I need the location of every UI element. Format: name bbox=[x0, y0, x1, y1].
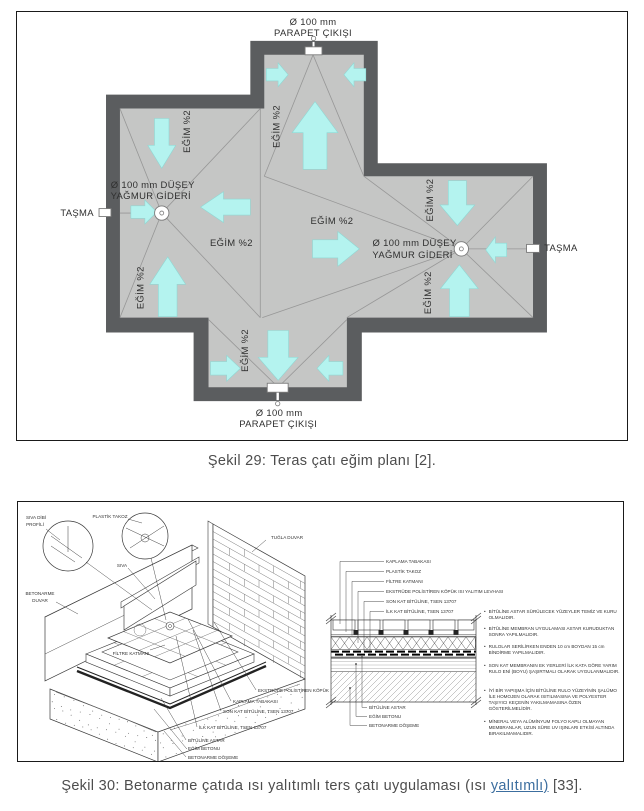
concrete-dot bbox=[70, 709, 71, 710]
section-paver bbox=[433, 620, 455, 630]
label-son-kat: SON KAT BİTÜLİNE, TSEN 13707 bbox=[223, 708, 294, 714]
roof-slope-plan-drawing: Ø 100 mmPARAPET ÇIKIŞIØ 100 mmPARAPET ÇI… bbox=[17, 12, 627, 440]
concrete-dot bbox=[260, 706, 261, 707]
concrete-dot bbox=[255, 722, 256, 723]
concrete-dot bbox=[142, 750, 143, 751]
concrete-dot bbox=[99, 718, 100, 719]
parapet-outlet-label: Ø 100 mm bbox=[290, 17, 337, 28]
label-siva: SIVA bbox=[117, 563, 128, 568]
concrete-dot bbox=[225, 735, 226, 736]
concrete-dot bbox=[277, 694, 278, 695]
concrete-dot bbox=[152, 735, 153, 736]
section-takoz bbox=[354, 630, 359, 635]
concrete-dot bbox=[127, 721, 128, 722]
concrete-dot bbox=[207, 719, 208, 720]
note-item: •SON KAT MEMBRANIN EK YERLERİ İLK KATA G… bbox=[484, 663, 622, 675]
concrete-dot bbox=[163, 747, 164, 748]
concrete-dot bbox=[238, 715, 239, 716]
concrete-dot bbox=[119, 729, 120, 730]
label-siva-dibi: SIVA DİBİ bbox=[26, 514, 46, 520]
figure1-caption-text: Şekil 29: Teras çatı eğim planı [2]. bbox=[208, 453, 436, 469]
concrete-dot bbox=[154, 751, 155, 752]
concrete-dot bbox=[235, 732, 236, 733]
section-label-top: PLASTİK TAKOZ bbox=[386, 568, 421, 574]
concrete-dot bbox=[65, 723, 66, 724]
concrete-dot bbox=[83, 705, 84, 706]
note-item: •RULOLAR SERİLİRKEN ENDEN 10 cm BOYDAN 1… bbox=[484, 644, 622, 656]
concrete-dot bbox=[137, 735, 138, 736]
concrete-dot bbox=[267, 696, 268, 697]
concrete-dot bbox=[291, 702, 292, 703]
concrete-dot bbox=[135, 725, 136, 726]
label-betonarme-duvar: DUVAR bbox=[32, 598, 48, 603]
concrete-dot bbox=[52, 701, 53, 702]
rain-drain bbox=[155, 206, 169, 220]
overflow-label: TAŞMA bbox=[544, 243, 578, 254]
concrete-dot bbox=[124, 746, 125, 747]
concrete-dot bbox=[82, 727, 83, 728]
concrete-dot bbox=[54, 694, 55, 695]
slope-label: EĞİM %2 bbox=[425, 179, 436, 222]
rain-drain-label: YAĞMUR GİDERİ bbox=[372, 250, 452, 261]
bullet-icon: • bbox=[484, 644, 486, 656]
section-paver bbox=[408, 620, 430, 630]
label-egim-betonu: EĞİM BETONU bbox=[188, 745, 220, 751]
takoz-marker bbox=[166, 622, 174, 630]
figure2-caption-prefix: Şekil 30: Betonarme çatıda ısı yalıtımlı… bbox=[61, 778, 490, 794]
concrete-dot bbox=[79, 720, 80, 721]
concrete-dot bbox=[265, 717, 266, 718]
concrete-dot bbox=[71, 715, 72, 716]
concrete-dot bbox=[110, 717, 111, 718]
concrete-dot bbox=[165, 757, 166, 758]
concrete-dot bbox=[193, 730, 194, 731]
concrete-dot bbox=[257, 715, 258, 716]
concrete-dot bbox=[56, 719, 57, 720]
concrete-dot bbox=[302, 697, 303, 698]
parapet-outlet bbox=[305, 47, 322, 55]
figure-29-roof-slope-plan: Ø 100 mmPARAPET ÇIKIŞIØ 100 mmPARAPET ÇI… bbox=[16, 11, 628, 441]
figure2-caption: Şekil 30: Betonarme çatıda ısı yalıtımlı… bbox=[0, 778, 644, 794]
section-label-top: FİLTRE KATMANI bbox=[386, 578, 423, 584]
concrete-dot bbox=[74, 725, 75, 726]
label-plastik-takoz: PLASTİK TAKOZ bbox=[92, 513, 127, 519]
concrete-dot bbox=[62, 711, 63, 712]
brick-wall-edge bbox=[208, 521, 213, 627]
detail-circle-plastik-takoz bbox=[122, 513, 168, 559]
concrete-dot bbox=[91, 729, 92, 730]
note-item: •BİTÜLİNE ASTAR SÜRÜLECEK YÜZEYLER TEMİZ… bbox=[484, 609, 622, 621]
section-takoz bbox=[379, 630, 384, 635]
concrete-dot bbox=[73, 700, 74, 701]
slope-label: EĞİM %2 bbox=[240, 329, 251, 372]
concrete-dot bbox=[182, 740, 183, 741]
concrete-dot bbox=[238, 705, 239, 706]
concrete-dot bbox=[107, 739, 108, 740]
label-betonarme-duvar: BETONARME bbox=[25, 591, 54, 596]
concrete-dot bbox=[176, 753, 177, 754]
concrete-dot bbox=[89, 714, 90, 715]
note-text: MİNERAL VEYA ALÜMİNYUM FOLYO KAPLI OLMAY… bbox=[489, 719, 622, 737]
section-label-bottom: BİTÜLİNE ASTAR bbox=[369, 704, 406, 710]
concrete-dot bbox=[97, 727, 98, 728]
concrete-dot bbox=[144, 730, 145, 731]
note-item: •İYİ BİR YAPIŞMA İÇİN BİTÜLİNE RULO YÜZE… bbox=[484, 688, 622, 712]
rain-drain-label: YAĞMUR GİDERİ bbox=[111, 191, 191, 202]
concrete-dot bbox=[146, 737, 147, 738]
slope-label: EĞİM %2 bbox=[272, 105, 283, 148]
concrete-dot bbox=[163, 733, 164, 734]
bullet-icon: • bbox=[484, 609, 486, 621]
figure1-caption: Şekil 29: Teras çatı eğim planı [2]. bbox=[0, 453, 644, 469]
section-paver bbox=[458, 620, 474, 630]
section-label-bottom: BETONARME DÖŞEME bbox=[369, 722, 419, 728]
section-paver bbox=[358, 620, 380, 630]
concrete-dot bbox=[99, 734, 100, 735]
section-label-top: İLK KAT BİTÜLİNE, TSEN 13707 bbox=[386, 608, 454, 614]
concrete-dot bbox=[133, 747, 134, 748]
concrete-dot bbox=[216, 720, 217, 721]
section-label-top: EKSTRÜDE POLİSTİREN KÖPÜK ISI YALITIM LE… bbox=[386, 588, 503, 594]
concrete-dot bbox=[125, 736, 126, 737]
section-paver bbox=[333, 620, 355, 630]
concrete-dot bbox=[185, 724, 186, 725]
concrete-dot bbox=[88, 724, 89, 725]
concrete-dot bbox=[155, 740, 156, 741]
bullet-icon: • bbox=[484, 626, 486, 638]
label-doseme: BETONARME DÖŞEME bbox=[188, 754, 238, 760]
section-paver bbox=[383, 620, 405, 630]
overflow-label: TAŞMA bbox=[60, 208, 94, 219]
slope-label: EĞİM %2 bbox=[182, 110, 193, 153]
bullet-icon: • bbox=[484, 688, 486, 712]
concrete-dot bbox=[246, 717, 247, 718]
concrete-dot bbox=[160, 742, 161, 743]
concrete-dot bbox=[218, 715, 219, 716]
note-item: •BİTÜLİNE MEMBRAN UYGULAMASI ASTAR KURUD… bbox=[484, 626, 622, 638]
rain-drain-label: Ø 100 mm DÜŞEY bbox=[111, 180, 195, 191]
section-label-top: KAPLAMA TABAKASI bbox=[386, 559, 431, 564]
leader-dot bbox=[355, 663, 357, 665]
note-text: İYİ BİR YAPIŞMA İÇİN BİTÜLİNE RULO YÜZEY… bbox=[489, 688, 622, 712]
note-item: •MİNERAL VEYA ALÜMİNYUM FOLYO KAPLI OLMA… bbox=[484, 719, 622, 737]
concrete-dot bbox=[298, 709, 299, 710]
section-label-top: SON KAT BİTÜLİNE, TSEN 13707 bbox=[386, 598, 457, 604]
label-astar: BİTÜLİNE ASTAR bbox=[188, 737, 225, 743]
parapet-outlet bbox=[267, 383, 288, 392]
concrete-dot bbox=[80, 712, 81, 713]
concrete-dot bbox=[61, 706, 62, 707]
section-takoz bbox=[404, 630, 409, 635]
label-siva-dibi: PROFİLİ bbox=[26, 521, 44, 527]
concrete-dot bbox=[106, 729, 107, 730]
concrete-dot bbox=[202, 736, 203, 737]
label-ilk-kat: İLK KAT BİTÜLİNE, TSEN 13707 bbox=[199, 724, 267, 730]
concrete-dot bbox=[128, 733, 129, 734]
parapet-outlet-label: PARAPET ÇIKIŞI bbox=[274, 28, 352, 39]
leader-dot bbox=[361, 656, 363, 658]
concrete-dot bbox=[186, 748, 187, 749]
note-text: BİTÜLİNE MEMBRAN UYGULAMASI ASTAR KURUDU… bbox=[489, 626, 622, 638]
section-takoz bbox=[429, 630, 434, 635]
label-filtre-katmani: FİLTRE KATMANI bbox=[113, 650, 150, 656]
bullet-icon: • bbox=[484, 663, 486, 675]
concrete-dot bbox=[101, 715, 102, 716]
label-tugla-duvar: TUĞLA DUVAR bbox=[271, 534, 304, 540]
concrete-dot bbox=[119, 719, 120, 720]
label-kaplama: KAPLAMA TABAKASI bbox=[233, 699, 278, 704]
parapet-outlet-label: Ø 100 mm bbox=[256, 408, 303, 419]
note-text: BİTÜLİNE ASTAR SÜRÜLECEK YÜZEYLER TEMİZ … bbox=[489, 609, 622, 621]
rain-drain-label: Ø 100 mm DÜŞEY bbox=[373, 238, 457, 249]
rc-slab-hatch bbox=[301, 672, 505, 702]
concrete-dot bbox=[227, 718, 228, 719]
concrete-dot bbox=[213, 732, 214, 733]
concrete-dot bbox=[173, 743, 174, 744]
label-ekstrude: EKSTRÜDE POLİSTİREN KÖPÜK bbox=[258, 687, 330, 693]
slope-label: EĞİM %2 bbox=[423, 271, 434, 314]
concrete-dot bbox=[291, 694, 292, 695]
concrete-dot bbox=[135, 741, 136, 742]
concrete-dot bbox=[144, 747, 145, 748]
slope-label: EĞİM %2 bbox=[135, 266, 146, 309]
slope-label: EĞİM %2 bbox=[311, 216, 354, 227]
section-label-bottom: EĞİM BETONU bbox=[369, 713, 401, 719]
section-takoz bbox=[454, 630, 459, 635]
concrete-dot bbox=[64, 696, 65, 697]
concrete-dot bbox=[234, 721, 235, 722]
overflow-scupper bbox=[99, 209, 111, 217]
concrete-dot bbox=[92, 711, 93, 712]
concrete-dot bbox=[281, 697, 282, 698]
bullet-icon: • bbox=[484, 719, 486, 737]
concrete-dot bbox=[116, 743, 117, 744]
figure2-caption-suffix: [33]. bbox=[549, 778, 583, 794]
concrete-dot bbox=[109, 723, 110, 724]
parapet-outlet-label: PARAPET ÇIKIŞI bbox=[239, 419, 317, 430]
note-text: RULOLAR SERİLİRKEN ENDEN 10 cm BOYDAN 15… bbox=[489, 644, 622, 656]
figure2-caption-link[interactable]: yalıtımlı) bbox=[491, 778, 549, 794]
overflow-scupper bbox=[527, 244, 540, 252]
slab-front-face bbox=[50, 689, 158, 761]
concrete-dot bbox=[182, 735, 183, 736]
figure-30-inverted-roof-detail: SIVA DİBİPROFİLİPLASTİK TAKOZSIVATUĞLA D… bbox=[17, 501, 624, 762]
concrete-dot bbox=[115, 732, 116, 733]
slope-label: EĞİM %2 bbox=[210, 238, 253, 249]
note-text: SON KAT MEMBRANIN EK YERLERİ İLK KATA GÖ… bbox=[489, 663, 622, 675]
leader-dot bbox=[349, 687, 351, 689]
concrete-dot bbox=[54, 708, 55, 709]
outlet-marker bbox=[276, 401, 280, 405]
concrete-dot bbox=[151, 754, 152, 755]
